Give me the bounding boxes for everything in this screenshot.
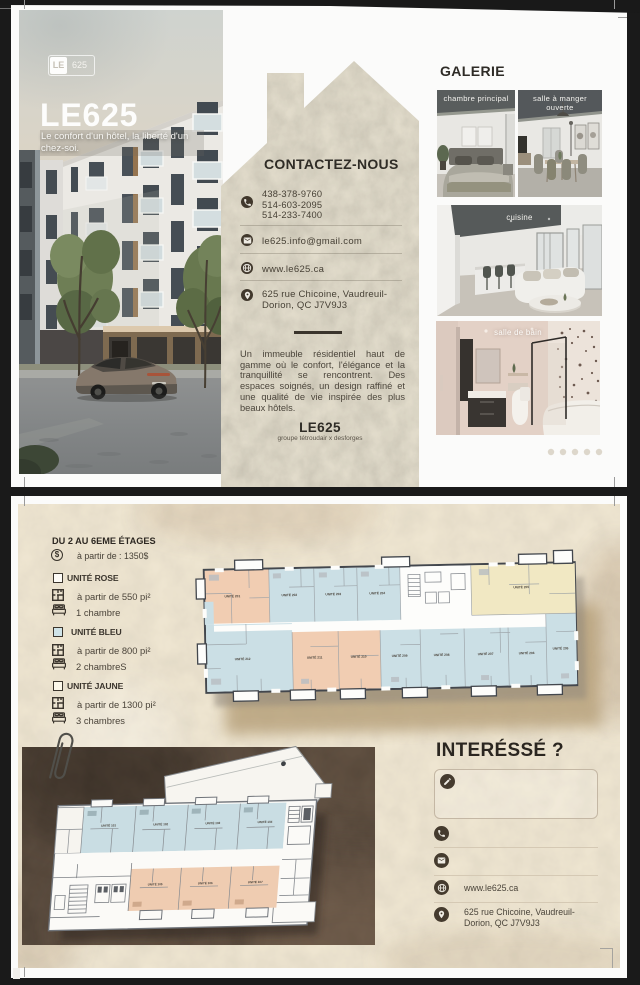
svg-text:UNITÉ 105: UNITÉ 105	[148, 881, 164, 886]
svg-text:UNITÉ 201: UNITÉ 201	[224, 593, 240, 598]
svg-text:UNITÉ 210: UNITÉ 210	[351, 654, 367, 659]
svg-text:UNITÉ 102: UNITÉ 102	[153, 821, 169, 826]
svg-text:UNITÉ 208: UNITÉ 208	[434, 652, 450, 657]
svg-text:UNITÉ 101: UNITÉ 101	[101, 822, 117, 827]
svg-text:UNITÉ 211: UNITÉ 211	[307, 654, 323, 659]
svg-text:UNITÉ 204: UNITÉ 204	[369, 590, 385, 595]
svg-text:UNITÉ 106: UNITÉ 106	[198, 880, 214, 885]
svg-text:UNITÉ 206: UNITÉ 206	[519, 650, 535, 655]
svg-text:UNITÉ 205: UNITÉ 205	[553, 645, 569, 650]
svg-text:UNITÉ 209: UNITÉ 209	[392, 653, 408, 658]
svg-text:UNITÉ 107: UNITÉ 107	[248, 879, 264, 884]
svg-text:UNITÉ 203: UNITÉ 203	[325, 591, 341, 596]
svg-text:UNITÉ 104: UNITÉ 104	[257, 819, 273, 824]
svg-text:UNITÉ 202: UNITÉ 202	[281, 592, 297, 597]
svg-text:UNITÉ 212: UNITÉ 212	[235, 656, 251, 661]
svg-text:UNITÉ 205: UNITÉ 205	[513, 584, 529, 589]
svg-text:UNITÉ 207: UNITÉ 207	[478, 651, 494, 656]
svg-text:UNITÉ 103: UNITÉ 103	[205, 820, 221, 825]
